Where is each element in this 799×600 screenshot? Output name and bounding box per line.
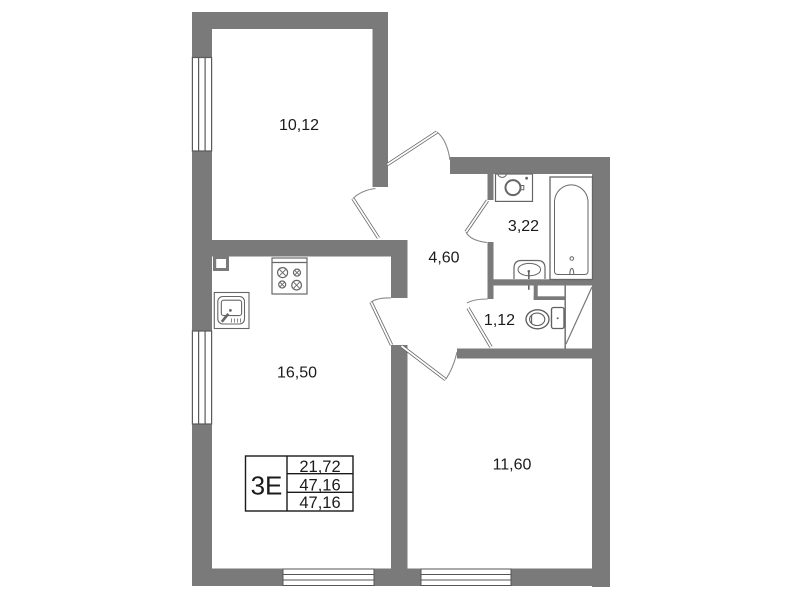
svg-text:3,22: 3,22: [508, 218, 539, 235]
svg-text:21,72: 21,72: [299, 458, 340, 476]
svg-text:47,16: 47,16: [299, 476, 340, 494]
svg-text:3Е: 3Е: [251, 471, 283, 501]
svg-text:16,50: 16,50: [277, 365, 317, 382]
svg-text:47,16: 47,16: [299, 494, 340, 512]
svg-text:10,12: 10,12: [279, 117, 319, 134]
svg-text:11,60: 11,60: [493, 457, 532, 474]
svg-text:4,60: 4,60: [428, 250, 459, 267]
svg-text:1,12: 1,12: [484, 312, 515, 329]
